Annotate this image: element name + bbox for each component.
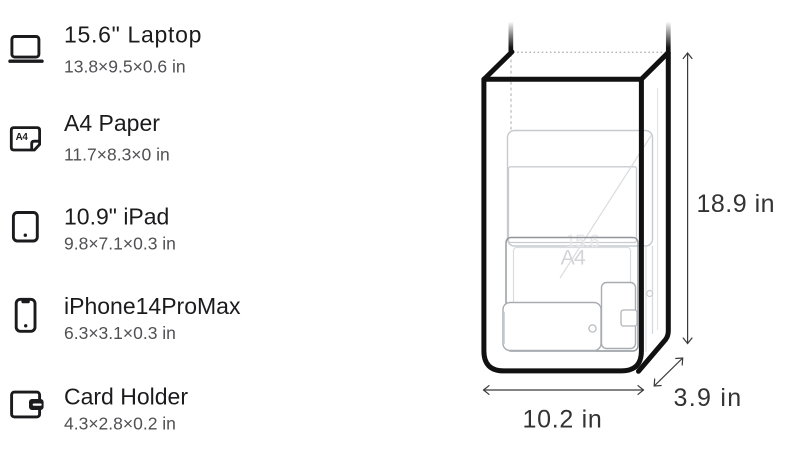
- svg-text:13.8×9.5×0.6 in: 13.8×9.5×0.6 in: [64, 57, 186, 77]
- svg-text:A4: A4: [16, 132, 29, 143]
- svg-text:4.3×2.8×0.2 in: 4.3×2.8×0.2 in: [64, 414, 176, 434]
- svg-text:18.9 in: 18.9 in: [697, 190, 776, 218]
- svg-text:iPhone14ProMax: iPhone14ProMax: [64, 293, 241, 319]
- svg-text:6.3×3.1×0.3 in: 6.3×3.1×0.3 in: [64, 323, 176, 343]
- svg-text:A4: A4: [561, 246, 586, 270]
- svg-text:10.9" iPad: 10.9" iPad: [64, 204, 169, 230]
- svg-text:Card Holder: Card Holder: [64, 383, 188, 409]
- svg-text:15.6" Laptop: 15.6" Laptop: [64, 21, 202, 47]
- svg-text:10.2 in: 10.2 in: [523, 406, 603, 434]
- svg-text:11.7×8.3×0 in: 11.7×8.3×0 in: [64, 145, 170, 165]
- svg-text:A4 Paper: A4 Paper: [64, 110, 160, 136]
- svg-text:9.8×7.1×0.3 in: 9.8×7.1×0.3 in: [64, 234, 176, 254]
- svg-text:3.9 in: 3.9 in: [674, 384, 743, 412]
